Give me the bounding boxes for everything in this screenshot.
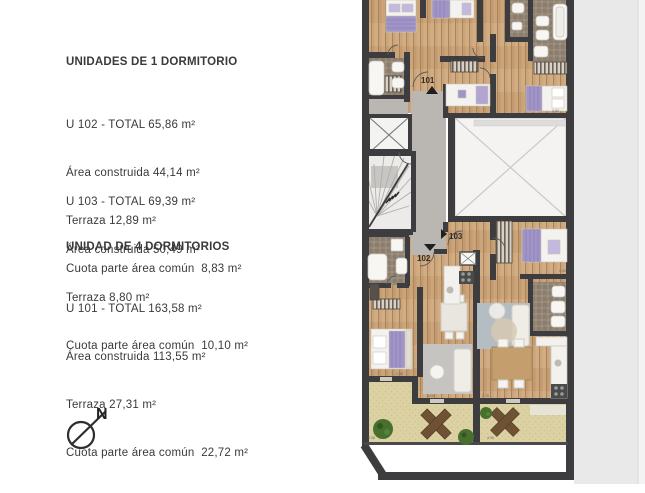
legend-heading-1-bed: UNIDADES DE 1 DORMITORIO — [66, 54, 237, 70]
svg-text:4.08: 4.08 — [368, 436, 375, 440]
staircase — [366, 152, 411, 230]
elevator — [368, 116, 410, 154]
unit-tag-102: 102 — [417, 254, 431, 263]
svg-text:2.40: 2.40 — [559, 269, 566, 273]
svg-text:4.40: 4.40 — [487, 436, 494, 440]
unit-102-total: U 102 - TOTAL 65,86 m² — [66, 117, 242, 133]
svg-text:1.76: 1.76 — [482, 394, 489, 398]
unit-101-terrace: Terraza 27,31 m² — [66, 397, 248, 413]
unit-tag-101: 101 — [421, 76, 435, 85]
courtyard-lightwell — [455, 118, 566, 217]
bed-top-second — [432, 0, 474, 18]
unit-101-common: Cuota parte área común 22,72 m² — [66, 445, 248, 461]
bed-top-left — [386, 0, 416, 32]
page-background — [574, 0, 645, 484]
svg-text:3.06: 3.06 — [427, 394, 434, 398]
bed-u102 — [371, 329, 412, 369]
legend-heading-4-bed: UNIDAD DE 4 DORMITORIOS — [66, 239, 229, 255]
unit-103-total: U 103 - TOTAL 69,39 m² — [66, 194, 248, 210]
bed-mid — [446, 84, 490, 106]
unit-101-total: U 101 - TOTAL 163,58 m² — [66, 301, 248, 317]
floor-plan-page: { "legend": { "section1_heading": "UNIDA… — [0, 0, 645, 484]
unit-tag-103: 103 — [449, 232, 463, 241]
dining-table-u103 — [492, 347, 532, 380]
dining-table-u102 — [441, 303, 467, 331]
bed-u103 — [522, 229, 567, 262]
svg-text:2.80: 2.80 — [552, 109, 559, 113]
svg-text:1.36: 1.36 — [396, 372, 403, 376]
bed-top-right — [526, 86, 567, 111]
unit-101-area: Área construida 113,55 m² — [66, 349, 248, 365]
unit-101-summary: U 101 - TOTAL 163,58 m² Área construida … — [66, 269, 248, 493]
